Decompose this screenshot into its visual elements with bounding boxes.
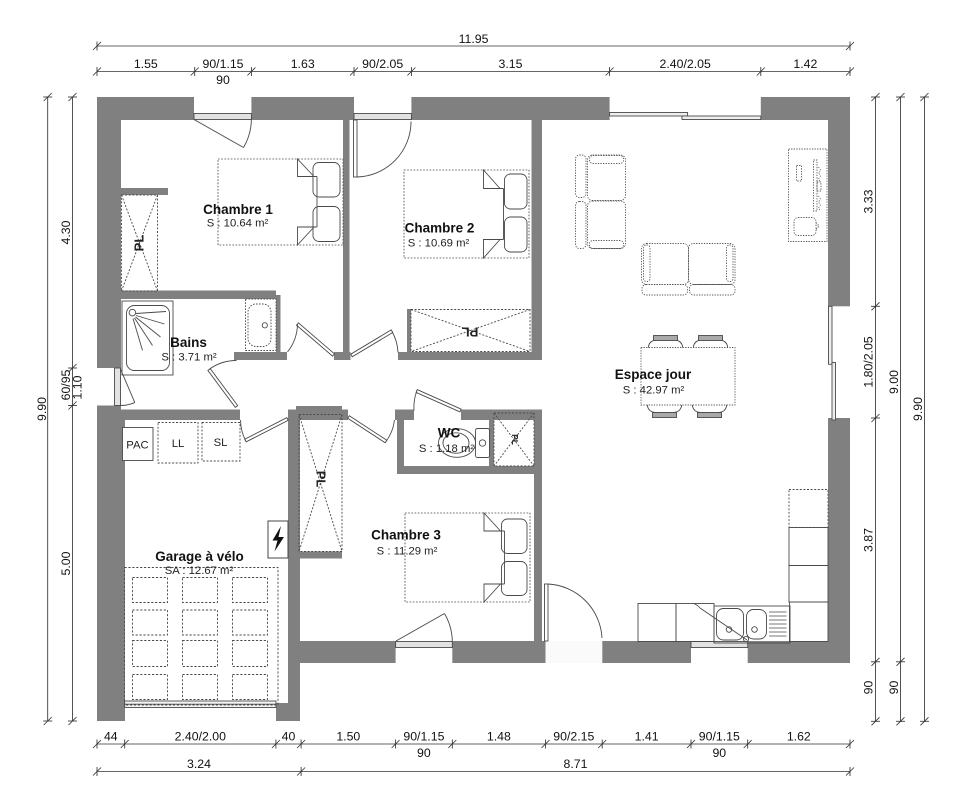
svg-text:90: 90 [417,746,431,760]
svg-text:90/1.15: 90/1.15 [699,730,740,744]
svg-text:S : 11.29 m²: S : 11.29 m² [377,546,438,558]
svg-text:1.80/2.05: 1.80/2.05 [862,336,876,387]
svg-text:PL: PL [510,434,520,445]
svg-text:40: 40 [282,730,296,744]
svg-text:PL: PL [462,325,479,340]
svg-text:90: 90 [216,73,230,87]
svg-text:1.42: 1.42 [793,57,817,71]
svg-text:5.00: 5.00 [59,551,73,575]
svg-text:11.95: 11.95 [459,32,489,46]
svg-text:1.55: 1.55 [134,57,158,71]
svg-text:S : 10.69 m²: S : 10.69 m² [408,238,470,250]
svg-text:44: 44 [104,730,118,744]
svg-text:9.90: 9.90 [35,397,49,421]
svg-text:3.33: 3.33 [862,189,876,213]
svg-text:PAC: PAC [126,440,148,452]
svg-text:2.40/2.00: 2.40/2.00 [175,730,226,744]
svg-text:2.40/2.05: 2.40/2.05 [660,57,711,71]
svg-text:3.15: 3.15 [499,57,523,71]
svg-text:Bains: Bains [170,335,207,350]
svg-text:S : 10.64 m²: S : 10.64 m² [207,218,269,230]
svg-text:S : 1.18 m²: S : 1.18 m² [419,443,474,455]
svg-text:1.48: 1.48 [487,730,511,744]
svg-text:PL: PL [131,235,146,252]
svg-text:1.10: 1.10 [71,375,85,399]
svg-text:3.24: 3.24 [187,757,211,771]
svg-text:1.62: 1.62 [787,730,811,744]
svg-text:PL: PL [314,471,329,488]
svg-text:90: 90 [862,681,876,695]
svg-text:90: 90 [887,681,901,695]
svg-text:4.30: 4.30 [59,220,73,244]
svg-text:1.63: 1.63 [291,57,315,71]
svg-text:Espace jour: Espace jour [615,367,692,382]
svg-text:90/1.15: 90/1.15 [403,730,444,744]
svg-text:Chambre 2: Chambre 2 [405,221,475,236]
svg-text:WC: WC [438,426,461,441]
svg-text:90: 90 [712,746,726,760]
svg-text:Chambre 1: Chambre 1 [203,202,273,217]
svg-text:Garage à vélo: Garage à vélo [155,549,244,564]
svg-text:S : 3.71 m²: S : 3.71 m² [161,352,216,364]
svg-text:LL: LL [172,438,185,450]
svg-text:SL: SL [214,437,228,449]
svg-text:1.41: 1.41 [635,730,659,744]
svg-text:3.87: 3.87 [862,528,876,552]
svg-text:90/1.15: 90/1.15 [202,57,243,71]
svg-text:9.90: 9.90 [911,397,925,421]
svg-text:S : 42.97 m²: S : 42.97 m² [623,385,685,397]
svg-text:Chambre 3: Chambre 3 [371,528,441,543]
svg-text:1.50: 1.50 [336,730,360,744]
svg-text:8.71: 8.71 [564,757,588,771]
svg-text:90/2.05: 90/2.05 [362,57,403,71]
svg-text:90/2.15: 90/2.15 [553,730,594,744]
svg-text:SA : 12.67 m²: SA : 12.67 m² [165,565,234,577]
svg-text:9.00: 9.00 [887,370,901,394]
